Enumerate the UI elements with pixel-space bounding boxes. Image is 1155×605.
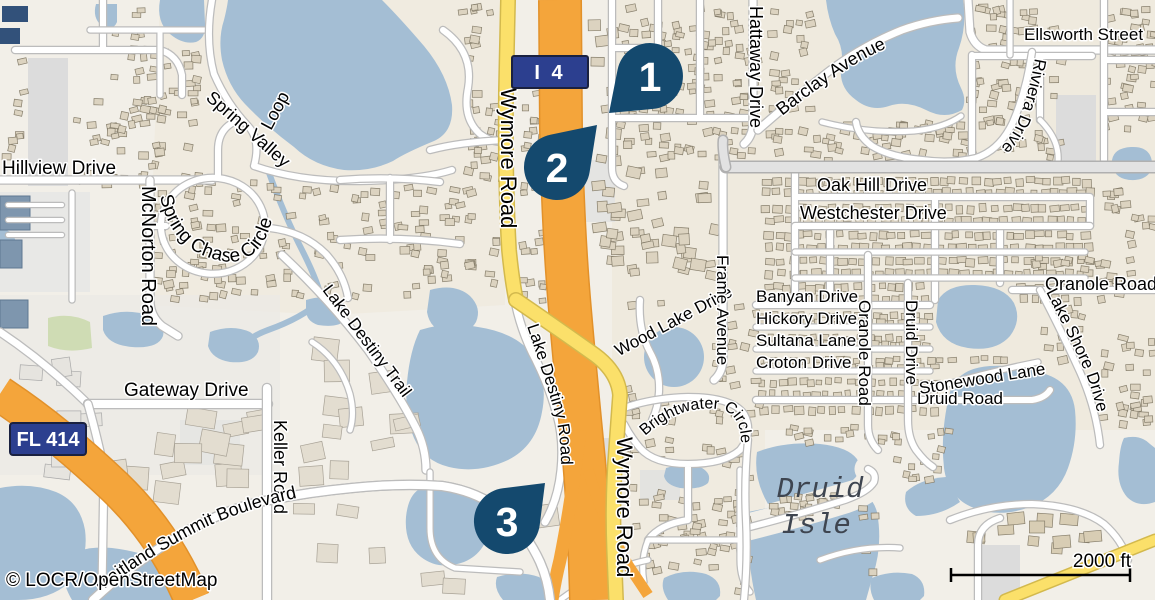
- svg-text:Oak Hill Drive: Oak Hill Drive: [817, 175, 927, 195]
- svg-text:FL 414: FL 414: [17, 429, 81, 451]
- svg-text:Sultana Lane: Sultana Lane: [756, 331, 856, 350]
- svg-text:Gateway Drive: Gateway Drive: [124, 380, 249, 401]
- svg-text:I 4: I 4: [534, 62, 565, 84]
- svg-text:Hillview Drive: Hillview Drive: [2, 158, 116, 179]
- svg-text:2: 2: [546, 145, 569, 191]
- svg-text:Croton Drive: Croton Drive: [756, 353, 851, 372]
- svg-text:3: 3: [496, 499, 519, 545]
- svg-text:Westchester Drive: Westchester Drive: [800, 203, 947, 223]
- svg-text:Wymore Road: Wymore Road: [496, 88, 521, 228]
- svg-text:Hickory Drive: Hickory Drive: [756, 309, 857, 328]
- svg-text:Oranole Road: Oranole Road: [855, 300, 874, 406]
- svg-text:Wymore Road: Wymore Road: [612, 437, 637, 577]
- svg-text:Hattaway Drive: Hattaway Drive: [746, 6, 766, 128]
- svg-text:Banyan Drive: Banyan Drive: [756, 287, 858, 306]
- svg-text:Druid: Druid: [776, 473, 864, 506]
- svg-text:2000 ft: 2000 ft: [1073, 551, 1132, 572]
- svg-text:McNorton Road: McNorton Road: [137, 186, 159, 326]
- svg-text:Isle: Isle: [781, 509, 851, 542]
- svg-text:Druid Drive: Druid Drive: [902, 300, 921, 385]
- svg-text:© LOCR/OpenStreetMap: © LOCR/OpenStreetMap: [6, 570, 217, 591]
- svg-text:1: 1: [639, 54, 662, 100]
- svg-text:Ellsworth Street: Ellsworth Street: [1024, 25, 1143, 44]
- svg-text:Frame Avenue: Frame Avenue: [713, 255, 732, 365]
